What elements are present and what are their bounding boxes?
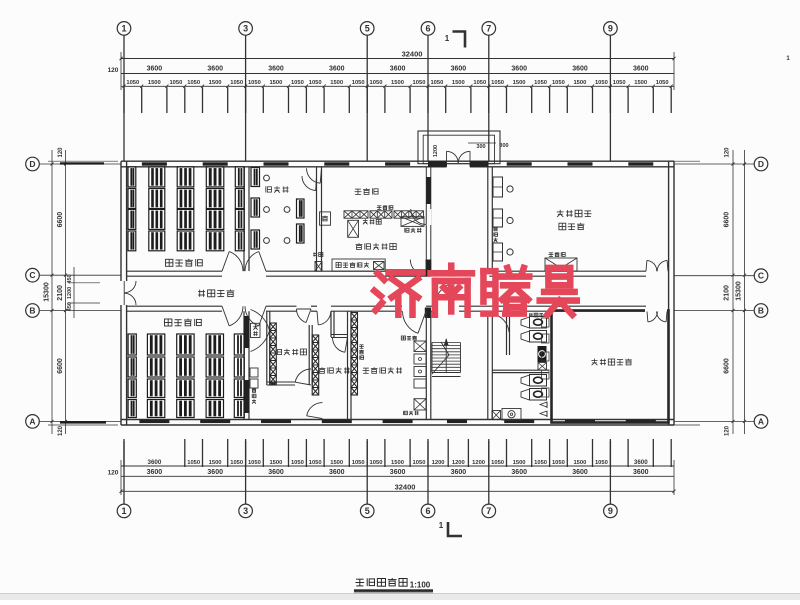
svg-text:1050: 1050	[491, 80, 504, 86]
svg-text:120: 120	[108, 67, 119, 74]
svg-text:5: 5	[365, 23, 370, 33]
svg-text:300: 300	[499, 143, 508, 149]
svg-text:1: 1	[121, 506, 126, 516]
svg-text:1: 1	[445, 34, 450, 43]
svg-text:C: C	[29, 270, 35, 280]
svg-text:6: 6	[425, 506, 430, 516]
svg-text:3600: 3600	[572, 469, 588, 476]
svg-text:1500: 1500	[452, 80, 465, 86]
svg-text:3600: 3600	[511, 469, 527, 476]
svg-text:1050: 1050	[552, 80, 565, 86]
svg-text:1050: 1050	[309, 460, 322, 466]
svg-text:1050: 1050	[187, 460, 200, 466]
svg-text:6600: 6600	[724, 212, 731, 228]
svg-text:1500: 1500	[513, 80, 526, 86]
svg-text:3600: 3600	[268, 66, 284, 73]
svg-text:6600: 6600	[57, 212, 64, 228]
svg-text:1500: 1500	[330, 460, 343, 466]
svg-text:3600: 3600	[572, 66, 588, 73]
svg-text:1050: 1050	[491, 460, 504, 466]
svg-text:1050: 1050	[534, 460, 547, 466]
svg-text:1050: 1050	[126, 80, 139, 86]
svg-text:6600: 6600	[724, 358, 731, 374]
svg-text:1050: 1050	[291, 80, 304, 86]
svg-text:1200: 1200	[432, 460, 445, 466]
svg-text:1500: 1500	[573, 80, 586, 86]
svg-text:1: 1	[121, 23, 126, 33]
svg-text:3600: 3600	[390, 469, 406, 476]
svg-text:1500: 1500	[513, 460, 526, 466]
svg-text:3600: 3600	[329, 66, 345, 73]
svg-text:D: D	[758, 159, 764, 169]
svg-text:1050: 1050	[413, 460, 426, 466]
svg-text:1050: 1050	[248, 460, 261, 466]
svg-text:1500: 1500	[573, 460, 586, 466]
svg-text:120: 120	[725, 425, 731, 436]
svg-text:D: D	[29, 159, 35, 169]
svg-text:1050: 1050	[187, 80, 200, 86]
svg-text:1050: 1050	[595, 80, 608, 86]
svg-text:6: 6	[425, 23, 430, 33]
svg-text:1500: 1500	[209, 80, 222, 86]
svg-text:1200: 1200	[452, 460, 465, 466]
svg-text:1050: 1050	[656, 80, 669, 86]
svg-text:2100: 2100	[724, 285, 731, 301]
svg-text:3600: 3600	[390, 66, 406, 73]
svg-text:3600: 3600	[147, 469, 163, 476]
svg-text:2100: 2100	[57, 285, 64, 301]
svg-text:1050: 1050	[309, 80, 322, 86]
svg-text:1050: 1050	[169, 80, 182, 86]
svg-text:3600: 3600	[207, 469, 223, 476]
svg-text:1050: 1050	[595, 460, 608, 466]
svg-text:A: A	[29, 416, 35, 426]
svg-text:450: 450	[67, 274, 73, 283]
svg-text:3600: 3600	[633, 469, 649, 476]
svg-text:3600: 3600	[511, 66, 527, 73]
svg-text:A: A	[758, 416, 764, 426]
svg-text:3600: 3600	[147, 66, 163, 73]
svg-text:3: 3	[243, 506, 248, 516]
svg-text:B: B	[29, 306, 35, 316]
svg-text:1200: 1200	[67, 287, 73, 299]
svg-text:7: 7	[486, 506, 491, 516]
svg-text:1050: 1050	[370, 80, 383, 86]
svg-text:1050: 1050	[552, 460, 565, 466]
svg-text:7: 7	[486, 23, 491, 33]
svg-text:C: C	[758, 271, 764, 281]
svg-text:1050: 1050	[352, 80, 365, 86]
svg-text:1500: 1500	[209, 460, 222, 466]
svg-text:1500: 1500	[330, 80, 343, 86]
svg-text:32400: 32400	[395, 482, 416, 491]
svg-text:1500: 1500	[391, 80, 404, 86]
svg-text:1050: 1050	[413, 80, 426, 86]
svg-text:3600: 3600	[451, 66, 467, 73]
svg-text:1200: 1200	[433, 145, 439, 157]
svg-text:1050: 1050	[534, 80, 547, 86]
svg-text:1050: 1050	[230, 80, 243, 86]
svg-text:3: 3	[243, 23, 248, 33]
svg-text:450: 450	[67, 302, 73, 311]
svg-text:1:100: 1:100	[410, 581, 431, 590]
svg-text:3600: 3600	[329, 469, 345, 476]
svg-text:15300: 15300	[44, 282, 51, 302]
svg-text:1050: 1050	[370, 460, 383, 466]
svg-text:1500: 1500	[269, 460, 282, 466]
svg-text:5: 5	[365, 506, 370, 516]
svg-text:3600: 3600	[207, 66, 223, 73]
svg-text:1050: 1050	[230, 460, 243, 466]
svg-text:1050: 1050	[291, 460, 304, 466]
svg-text:1050: 1050	[613, 80, 626, 86]
svg-text:1050: 1050	[248, 80, 261, 86]
svg-text:3600: 3600	[268, 469, 284, 476]
svg-text:120: 120	[725, 147, 731, 158]
svg-text:9: 9	[608, 23, 613, 33]
svg-text:3600: 3600	[633, 66, 649, 73]
svg-text:3600: 3600	[148, 459, 162, 466]
svg-text:300: 300	[476, 144, 485, 150]
svg-text:1050: 1050	[430, 80, 443, 86]
svg-text:1: 1	[439, 521, 444, 530]
svg-text:15300: 15300	[736, 281, 743, 301]
svg-text:3600: 3600	[634, 459, 648, 466]
svg-text:120: 120	[58, 147, 64, 158]
svg-text:1500: 1500	[148, 80, 161, 86]
svg-text:6600: 6600	[57, 358, 64, 374]
svg-text:3600: 3600	[451, 469, 467, 476]
svg-text:1050: 1050	[352, 460, 365, 466]
svg-text:1500: 1500	[634, 80, 647, 86]
svg-text:1500: 1500	[269, 80, 282, 86]
svg-text:B: B	[758, 306, 764, 316]
svg-text:1050: 1050	[473, 80, 486, 86]
svg-text:1500: 1500	[391, 460, 404, 466]
svg-text:120: 120	[108, 470, 119, 477]
svg-text:1200: 1200	[472, 460, 485, 466]
svg-text:32400: 32400	[402, 50, 423, 59]
svg-text:120: 120	[58, 425, 64, 436]
svg-text:9: 9	[608, 506, 613, 516]
